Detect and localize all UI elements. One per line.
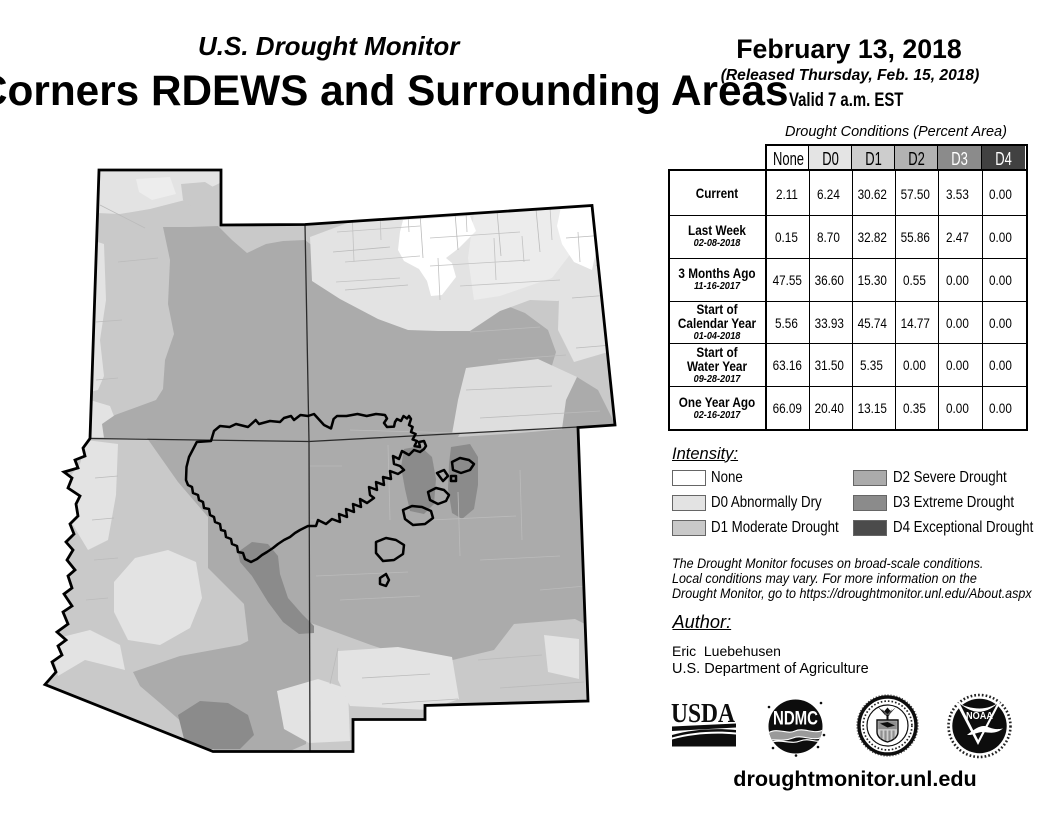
svg-text:NOAA: NOAA [966,710,993,722]
svg-text:USDA: USDA [671,700,735,728]
svg-text:NDMC: NDMC [773,709,818,730]
